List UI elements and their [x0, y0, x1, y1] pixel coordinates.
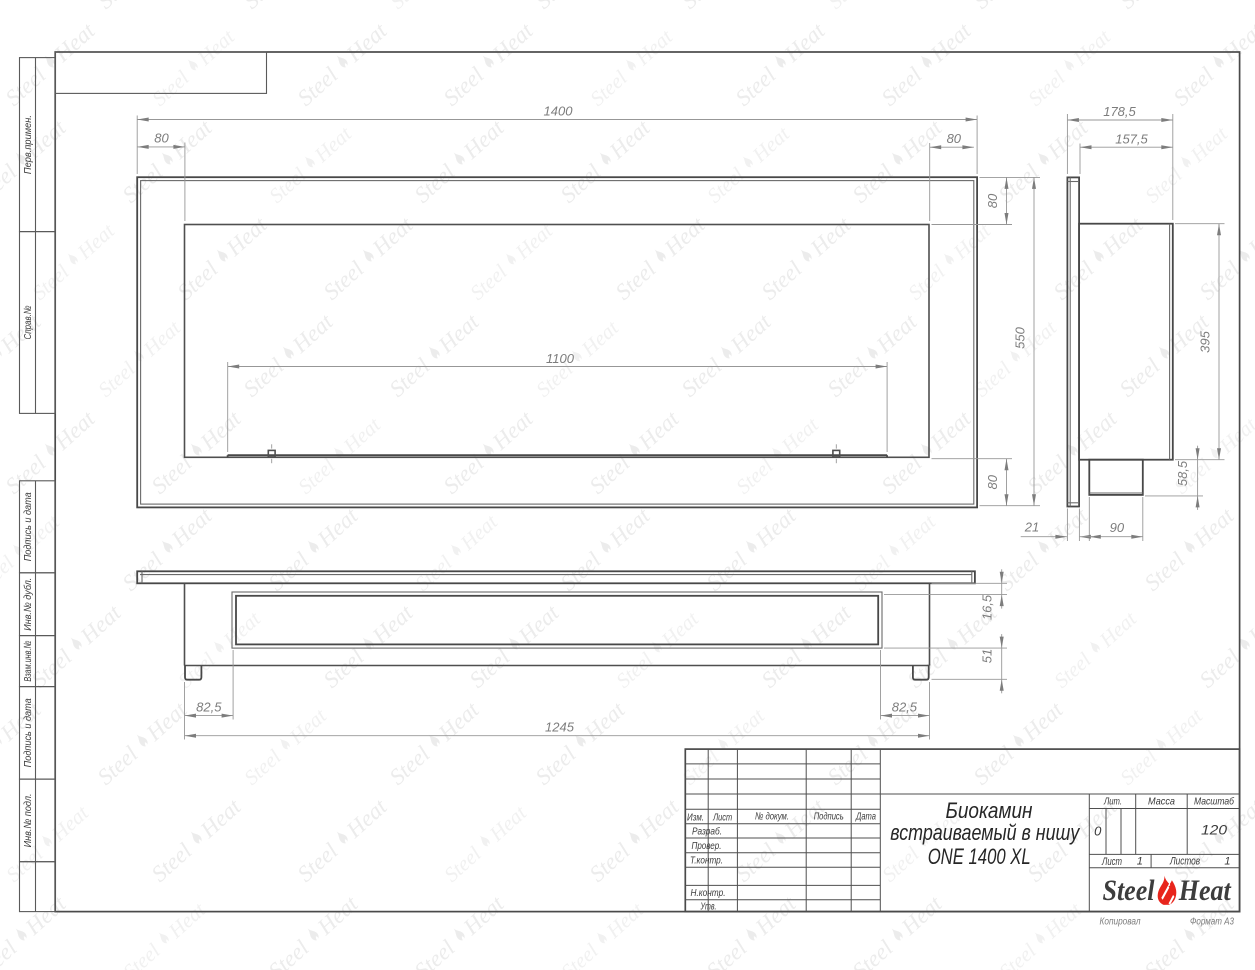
svg-text:1: 1 — [1137, 856, 1143, 868]
svg-text:Подпись: Подпись — [814, 810, 844, 822]
svg-text:1245: 1245 — [545, 720, 575, 735]
svg-text:550: 550 — [1013, 326, 1028, 348]
svg-text:82,5: 82,5 — [892, 700, 918, 715]
svg-text:Подпись и дата: Подпись и дата — [22, 492, 34, 561]
svg-text:Инв.№ дубл.: Инв.№ дубл. — [22, 578, 34, 631]
svg-text:Взам.инв.№: Взам.инв.№ — [22, 641, 34, 682]
svg-text:51: 51 — [980, 649, 995, 663]
svg-text:Формат А3: Формат А3 — [1190, 917, 1234, 928]
svg-text:178,5: 178,5 — [1103, 104, 1136, 119]
svg-text:1100: 1100 — [546, 351, 575, 366]
svg-text:Утв.: Утв. — [700, 900, 717, 912]
svg-text:58,5: 58,5 — [1175, 460, 1190, 486]
svg-text:Перв.примен.: Перв.примен. — [22, 115, 34, 174]
svg-text:1: 1 — [1224, 856, 1230, 868]
svg-text:Масса: Масса — [1148, 795, 1175, 807]
svg-text:Справ.№: Справ.№ — [22, 306, 34, 340]
svg-text:ONE 1400 XL: ONE 1400 XL — [928, 844, 1031, 869]
svg-text:0: 0 — [1094, 824, 1102, 839]
svg-text:80: 80 — [985, 193, 1000, 208]
svg-text:Копировал: Копировал — [1100, 917, 1141, 928]
svg-text:82,5: 82,5 — [196, 700, 222, 715]
svg-text:157,5: 157,5 — [1115, 131, 1148, 146]
svg-text:Лист: Лист — [712, 811, 732, 823]
svg-text:90: 90 — [1110, 520, 1125, 535]
svg-text:Разраб.: Разраб. — [692, 825, 722, 837]
svg-text:Heat: Heat — [1178, 874, 1232, 907]
svg-text:Изм.: Изм. — [687, 811, 704, 823]
svg-text:80: 80 — [985, 474, 1000, 489]
svg-text:Провер.: Провер. — [692, 840, 722, 852]
svg-text:Н.контр.: Н.контр. — [691, 887, 726, 899]
svg-text:Листов: Листов — [1169, 856, 1200, 868]
svg-text:Лит.: Лит. — [1103, 795, 1122, 807]
svg-text:Лист: Лист — [1101, 856, 1122, 868]
svg-text:Инв.№ подл.: Инв.№ подл. — [22, 793, 34, 847]
svg-text:80: 80 — [154, 131, 169, 146]
svg-text:80: 80 — [947, 131, 962, 146]
svg-text:встраиваемый в нишу: встраиваемый в нишу — [890, 820, 1081, 845]
svg-text:1400: 1400 — [544, 104, 574, 119]
svg-text:№ докум.: № докум. — [755, 810, 789, 822]
svg-text:395: 395 — [1197, 330, 1212, 352]
svg-text:Дата: Дата — [855, 810, 876, 822]
svg-text:Steel: Steel — [1103, 874, 1156, 907]
svg-text:Масштаб: Масштаб — [1194, 795, 1235, 807]
svg-text:16,5: 16,5 — [980, 594, 995, 620]
svg-text:21: 21 — [1024, 520, 1039, 535]
svg-text:Подпись и дата: Подпись и дата — [22, 698, 34, 767]
svg-text:Т.контр.: Т.контр. — [690, 854, 723, 866]
svg-text:120: 120 — [1201, 821, 1227, 837]
